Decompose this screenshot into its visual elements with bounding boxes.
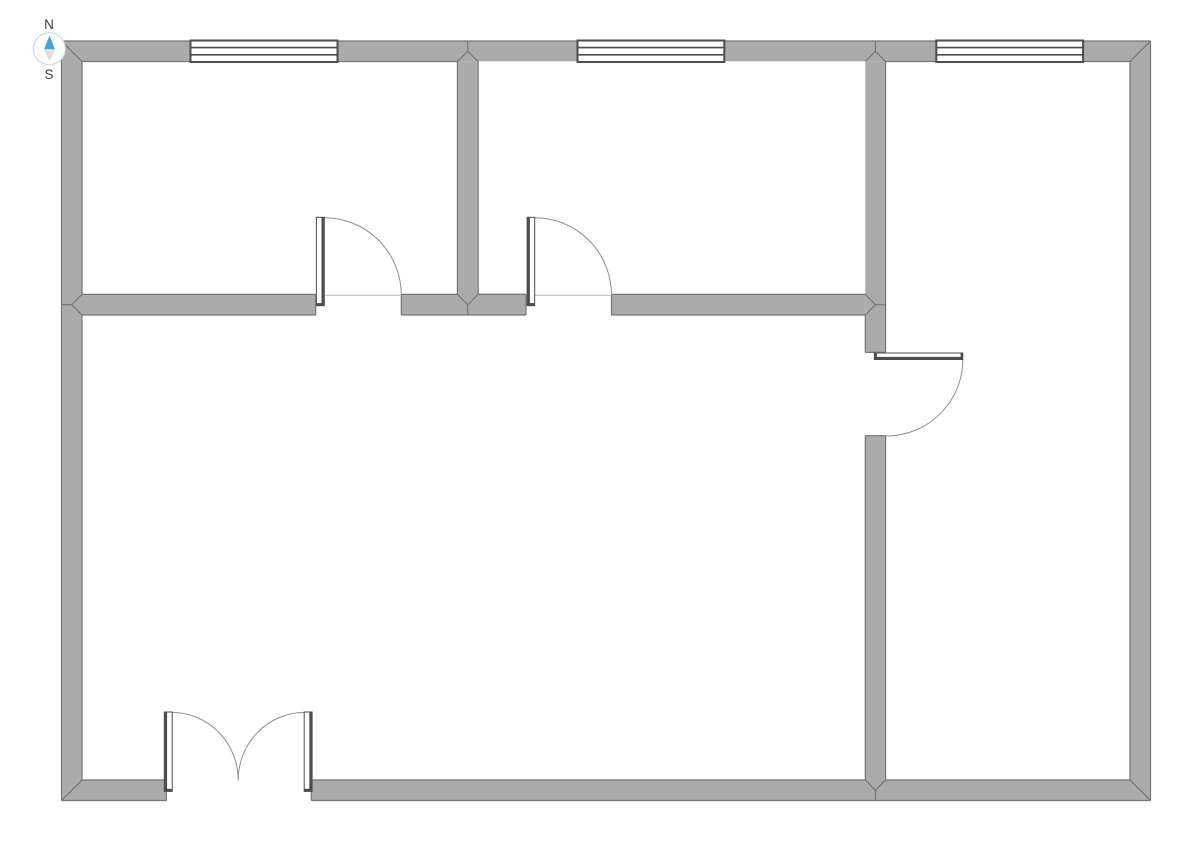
svg-text:S: S	[44, 67, 53, 82]
svg-text:N: N	[44, 17, 54, 32]
